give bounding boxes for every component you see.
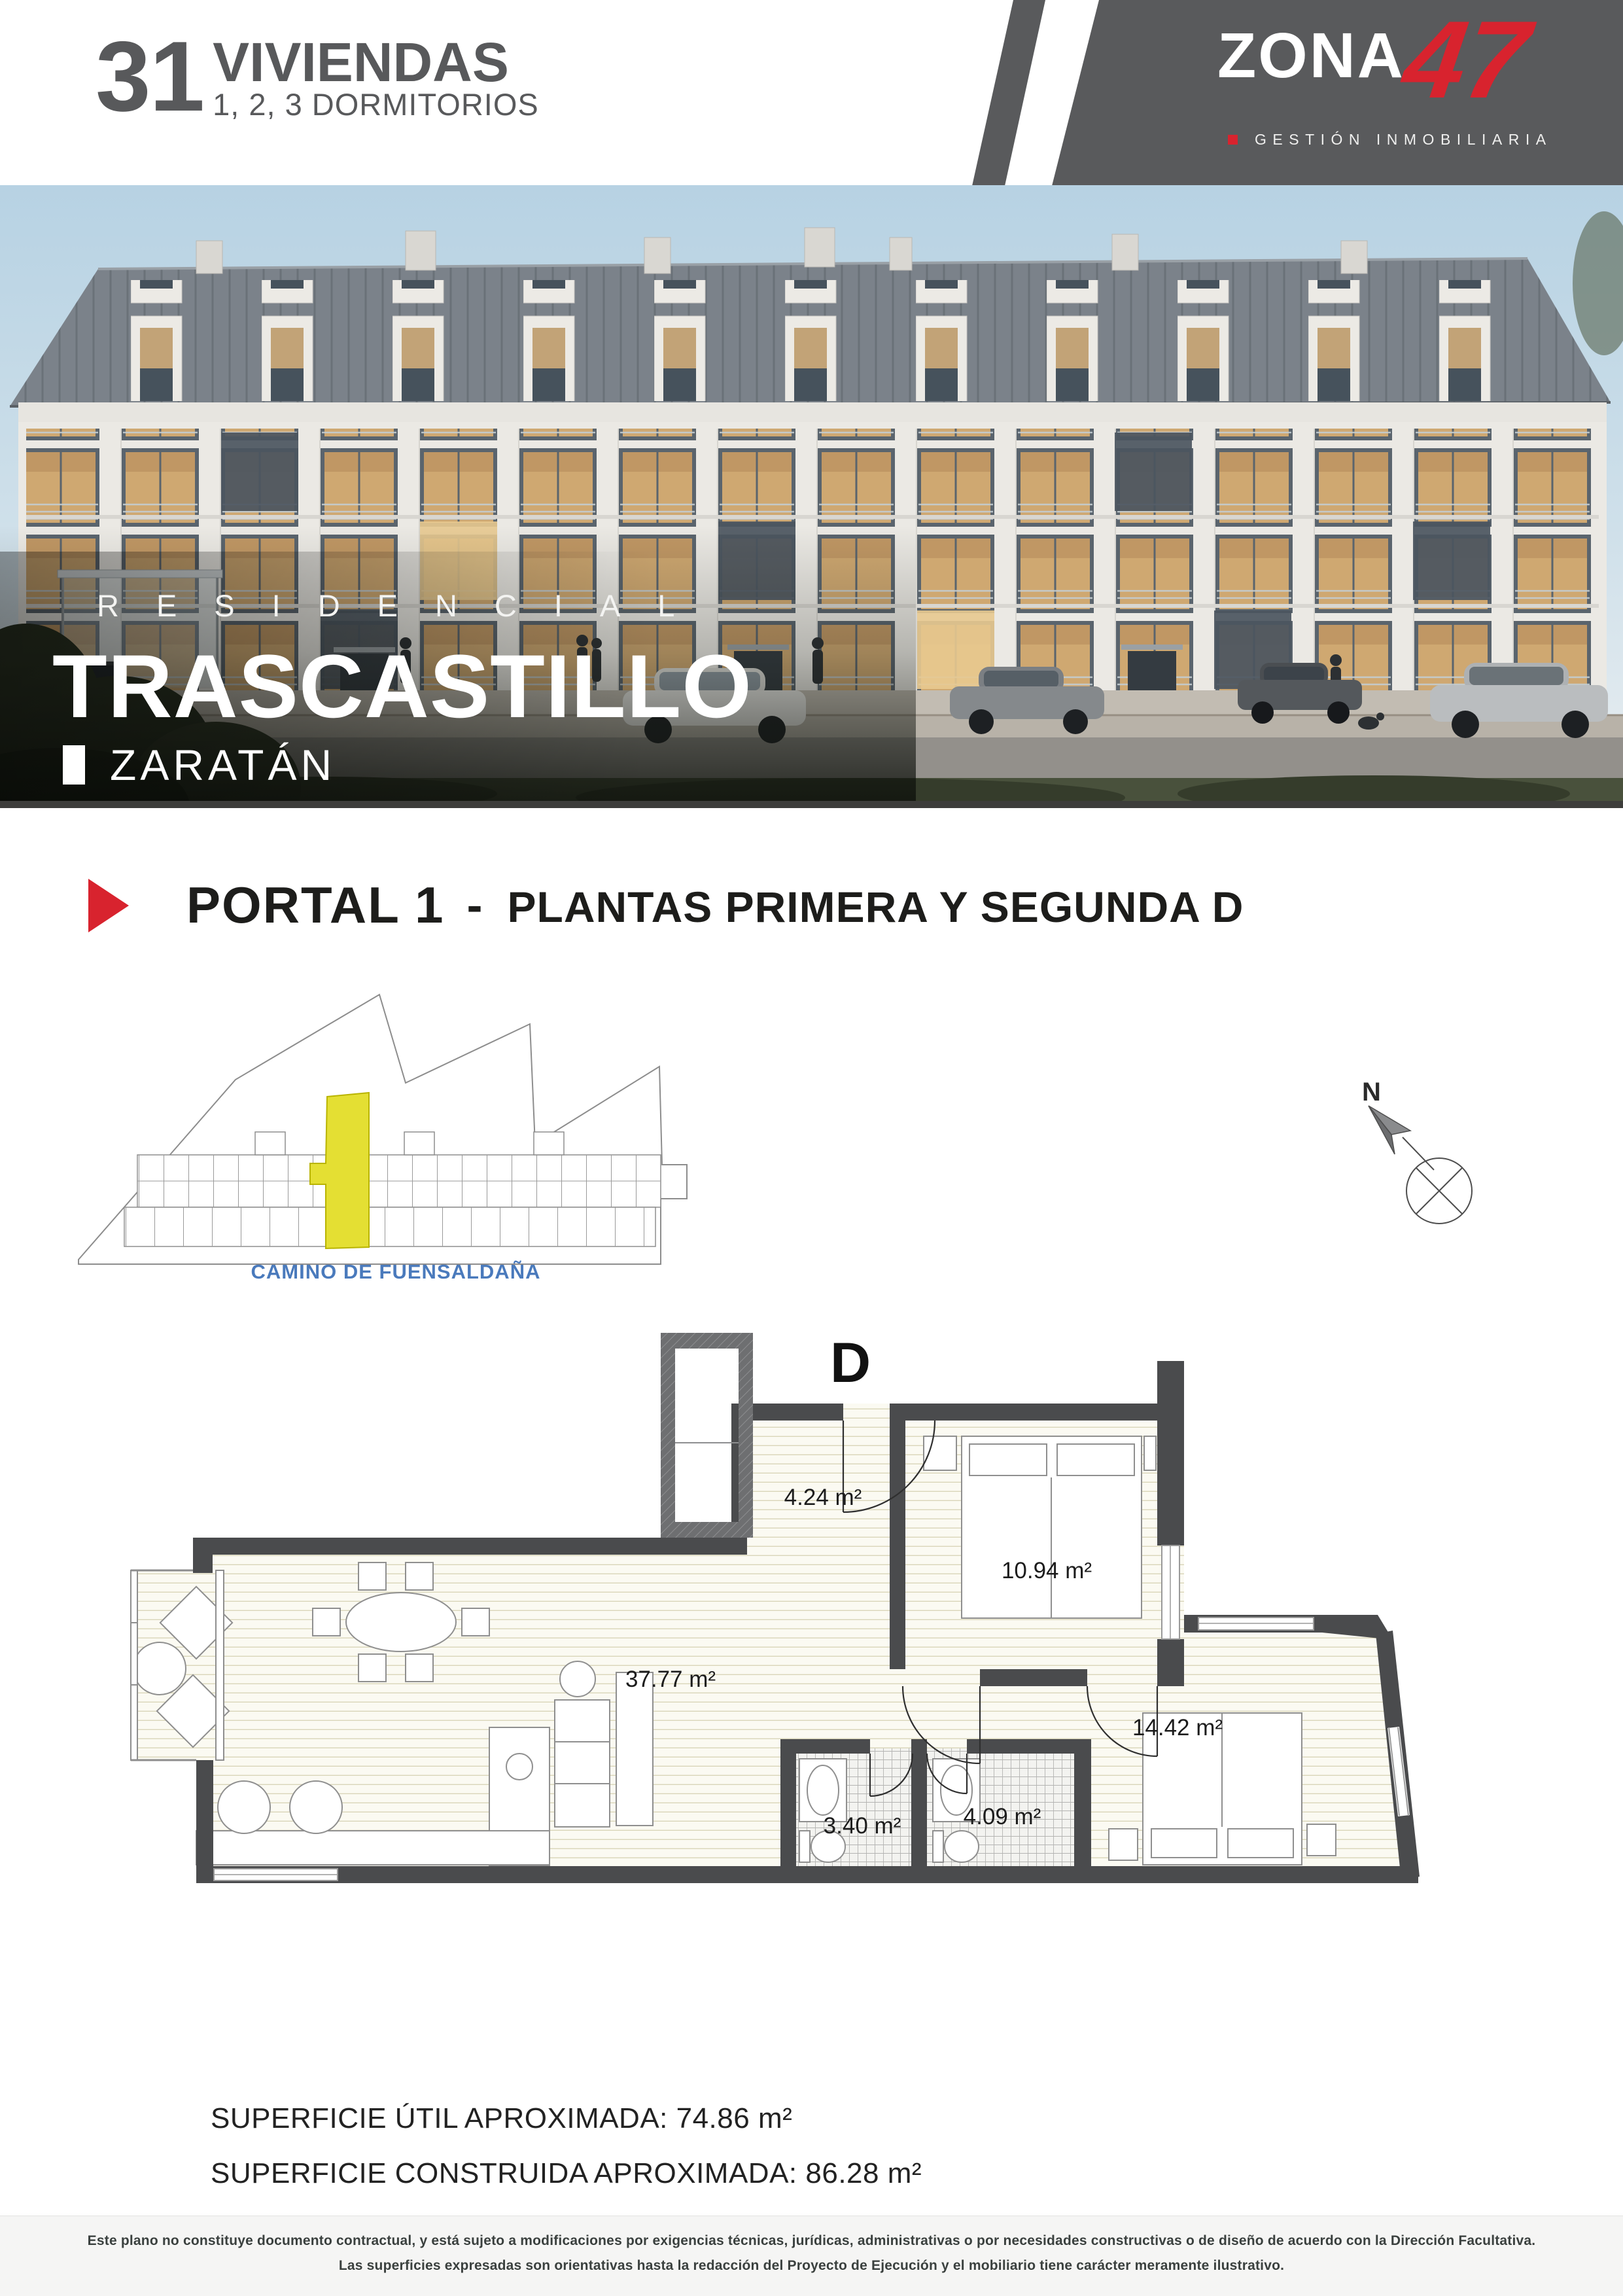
dining-table (346, 1593, 456, 1651)
floor-plan-drawing: D 4.24 m² 10.94 m² 37.77 m² 14.42 m² 3.4… (118, 1309, 1439, 1969)
compass-drawing: N (1335, 1067, 1478, 1243)
superficie-util: SUPERFICIE ÚTIL APROXIMADA: 74.86 m² (211, 2091, 922, 2146)
portal-label: PORTAL 1 (186, 875, 445, 935)
nightstand (1109, 1829, 1138, 1860)
room-label-dorm2: 14.42 m² (1132, 1715, 1223, 1740)
room-label-hall: 4.24 m² (784, 1485, 862, 1510)
building-units-lower (124, 1207, 655, 1246)
logo-tagline: GESTIÓN INMOBILIARIA (1228, 131, 1552, 149)
nightstand (1307, 1824, 1336, 1856)
disclaimer-line-1: Este plano no constituye documento contr… (0, 2233, 1623, 2249)
stair-cores (255, 1132, 564, 1155)
room-label-salon: 37.77 m² (625, 1667, 716, 1692)
room-label-bano1: 3.40 m² (824, 1813, 901, 1839)
terrace-table (133, 1642, 186, 1695)
street-label: CAMINO DE FUENSALDAÑA (170, 1260, 621, 1284)
room-label-dorm1: 10.94 m² (1002, 1558, 1092, 1583)
red-triangle-icon (88, 879, 129, 932)
brand-banner: ZONA 47 GESTIÓN INMOBILIARIA (943, 0, 1623, 186)
bath2-toilet (945, 1831, 979, 1862)
hero-title: TRASCASTILLO (52, 635, 752, 738)
stool (290, 1781, 342, 1833)
plantas-label: PLANTAS PRIMERA Y SEGUNDA D (507, 879, 1244, 932)
units-count: 31 (96, 34, 203, 119)
hero-photo: RESIDENCIAL TRASCASTILLO ZARATÁN (0, 185, 1623, 808)
nightstand (1144, 1436, 1156, 1470)
header-units: 31 VIVIENDAS 1, 2, 3 DORMITORIOS (96, 34, 539, 122)
location-square-icon (63, 745, 85, 785)
units-label: VIVIENDAS (213, 37, 539, 88)
disclaimer-line-2: Las superficies expresadas son orientati… (0, 2258, 1623, 2274)
logo-zona-text: ZONA (1217, 20, 1405, 92)
dormers (92, 280, 1550, 401)
bath2-toilet-tank (933, 1831, 943, 1862)
units-subtitle: 1, 2, 3 DORMITORIOS (213, 88, 539, 122)
kitchen-sink (506, 1754, 532, 1780)
common-core (661, 1333, 753, 1538)
zona47-logo: ZONA 47 (1217, 20, 1527, 109)
logo-47-text: 47 (1398, 10, 1534, 109)
side-table (560, 1661, 595, 1697)
tagline-square-icon (1228, 135, 1238, 145)
stool (218, 1781, 270, 1833)
tv-unit (616, 1672, 653, 1826)
compass-north-label: N (1362, 1078, 1381, 1106)
site-plan (39, 968, 693, 1269)
location-text: ZARATÁN (110, 740, 336, 790)
hero-kicker: RESIDENCIAL (97, 588, 712, 624)
section-title: PORTAL 1 - PLANTAS PRIMERA Y SEGUNDA D (88, 875, 1244, 935)
sofa (555, 1700, 610, 1827)
room-label-bano2: 4.09 m² (964, 1804, 1041, 1829)
floor-plan: D 4.24 m² 10.94 m² 37.77 m² 14.42 m² 3.4… (118, 1309, 1439, 1969)
footer-disclaimer: Este plano no constituye documento contr… (0, 2216, 1623, 2296)
bath1-basin (807, 1765, 839, 1815)
bath1-toilet-tank (799, 1831, 810, 1862)
title-separator: - (467, 879, 483, 932)
banner-stripe-shape (972, 0, 1045, 186)
tagline-text: GESTIÓN INMOBILIARIA (1255, 131, 1552, 149)
unit-letter-label: D (830, 1332, 871, 1394)
compass: N (1335, 1067, 1478, 1243)
site-plan-drawing (39, 968, 693, 1269)
photo-bottom-strip (0, 801, 1623, 808)
north-arrow-icon (1369, 1106, 1410, 1135)
hero-location: ZARATÁN (63, 740, 336, 790)
surface-summary: SUPERFICIE ÚTIL APROXIMADA: 74.86 m² SUP… (211, 2091, 922, 2201)
superficie-construida: SUPERFICIE CONSTRUIDA APROXIMADA: 86.28 … (211, 2146, 922, 2201)
kitchen-counter-low (196, 1831, 550, 1865)
